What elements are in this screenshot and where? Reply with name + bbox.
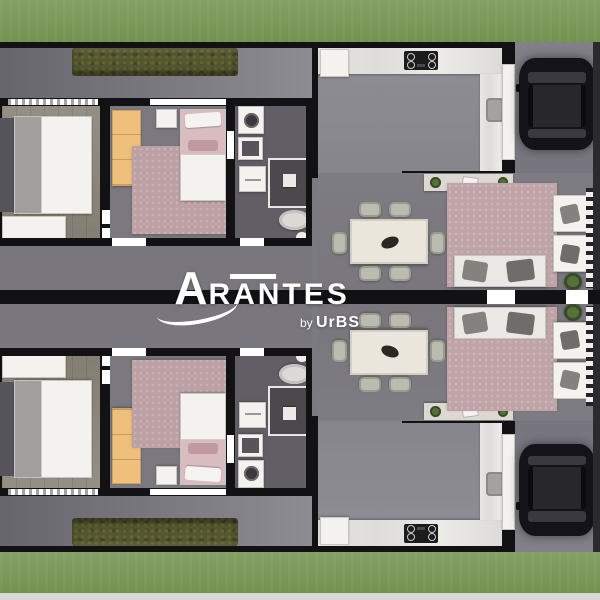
car-roof	[528, 85, 586, 127]
vanity-handle	[245, 413, 261, 415]
bedroom2-window	[146, 489, 232, 495]
nightstand	[156, 466, 177, 485]
sofa-cushion	[506, 258, 535, 282]
car-windshield	[528, 72, 586, 83]
armchair	[553, 195, 587, 232]
byline-prefix: by	[300, 316, 313, 330]
sofa-cushion	[462, 259, 489, 283]
bedroom1-window	[8, 489, 98, 495]
washer-drum	[244, 466, 259, 481]
refrigerator	[320, 517, 349, 545]
single-bed	[180, 109, 226, 201]
walkway-edge	[0, 48, 12, 102]
shower-box	[268, 386, 310, 436]
vanity-handle	[245, 179, 261, 181]
refrigerator	[320, 49, 349, 77]
washer-drum	[244, 113, 259, 128]
parked-car	[519, 444, 595, 536]
bedroom-rear-wall	[0, 238, 312, 246]
armchair	[553, 322, 587, 359]
bedroom-rear-wall	[0, 348, 312, 356]
bathroom-rear-door	[240, 238, 264, 246]
burner-icon	[407, 525, 415, 533]
bedroom1-door-opening	[102, 370, 110, 384]
armchair-cushion	[559, 369, 580, 390]
bedroom2-rear-door	[112, 238, 146, 246]
front-lawn	[0, 0, 600, 42]
double-bed	[14, 380, 92, 478]
car-rear-window	[528, 456, 586, 465]
parked-car	[519, 58, 595, 150]
car-rear-window	[528, 129, 586, 138]
garage-half-wall	[502, 434, 515, 530]
bed2-fold-line	[181, 154, 225, 155]
bedroom2-rear-door	[112, 348, 146, 356]
cooktop	[404, 51, 438, 70]
sofa-cushion	[462, 311, 489, 335]
garden-hedge	[72, 48, 238, 76]
table-centerpiece	[380, 343, 401, 359]
washing-machine	[238, 106, 264, 134]
armchair-cushion	[560, 244, 581, 265]
burner-icon	[428, 533, 436, 541]
car-roof	[528, 467, 586, 509]
car-mirror-left	[516, 502, 520, 510]
laundry-tub	[238, 434, 263, 457]
tub-basin	[242, 141, 259, 156]
floor-plant-icon	[564, 304, 582, 321]
bed2-pillow	[185, 466, 222, 482]
bathroom-vanity	[239, 402, 266, 428]
unit-b	[0, 297, 600, 552]
bathroom-wall	[226, 98, 235, 247]
burner-icon	[407, 533, 415, 541]
burner-icon	[407, 61, 415, 69]
bedroom2-window	[146, 99, 232, 105]
back-lawn	[0, 552, 600, 593]
bedroom1-window	[8, 99, 98, 105]
armchair-cushion	[559, 203, 580, 224]
armchair	[553, 362, 587, 399]
boundary-wall-right	[593, 304, 600, 552]
dining-chair	[389, 377, 411, 392]
bed1-fold-line	[41, 117, 42, 213]
brand-macron-bar	[230, 274, 276, 279]
sofa	[454, 307, 546, 339]
dining-chair	[332, 340, 347, 362]
garden-hedge	[72, 518, 238, 546]
living-window-opening	[566, 290, 588, 297]
walkway-edge	[0, 492, 12, 546]
car-windshield	[528, 511, 586, 522]
bedroom-divider-wall	[100, 98, 110, 247]
dining-chair	[430, 232, 445, 254]
bathroom-wall	[226, 347, 235, 496]
cooktop-controls	[417, 64, 425, 67]
burner-icon	[428, 61, 436, 69]
bedroom1-dresser	[2, 353, 66, 378]
bed2-pillow	[185, 112, 222, 128]
garage-half-wall	[502, 64, 515, 160]
shower-drain	[283, 174, 296, 187]
dining-chair	[359, 202, 381, 217]
bathroom-vanity	[239, 166, 266, 192]
burner-icon	[428, 525, 436, 533]
double-bed	[14, 116, 92, 214]
dining-chair	[389, 202, 411, 217]
car-mirror-left	[516, 84, 520, 92]
floor-plant-icon	[564, 273, 582, 290]
dining-chair	[389, 313, 411, 328]
garage-wall-segment	[502, 530, 515, 552]
potted-plant-icon	[430, 177, 441, 188]
burner-icon	[407, 53, 415, 61]
armchair-cushion	[560, 330, 581, 351]
single-bed	[180, 393, 226, 485]
bathroom-door-opening	[227, 131, 234, 159]
image-edge-strip	[0, 593, 600, 600]
watermark: ARANTES by UrBS	[150, 270, 374, 332]
entry-threshold	[487, 297, 515, 304]
shower-drain	[283, 407, 296, 420]
garage-wall-segment	[502, 42, 515, 64]
dining-chair	[359, 377, 381, 392]
bathroom-door-opening	[227, 435, 234, 463]
byline-brand: UrBS	[316, 314, 360, 331]
entry-threshold	[487, 290, 515, 297]
bathroom-rear-door	[240, 348, 264, 356]
potted-plant-icon	[430, 406, 441, 417]
table-centerpiece	[380, 234, 401, 250]
sofa-cushion	[506, 311, 535, 335]
bed1-fold-line	[41, 381, 42, 477]
dining-chair	[430, 340, 445, 362]
living-window-opening	[566, 297, 588, 304]
tub-basin	[242, 438, 259, 453]
cooktop	[404, 524, 438, 543]
dining-chair	[389, 266, 411, 281]
bed2-accent-pillow	[188, 443, 218, 454]
dining-table	[350, 219, 428, 264]
burner-icon	[428, 53, 436, 61]
sofa	[454, 255, 546, 287]
bed1-throw-blanket	[15, 117, 41, 213]
unit-a	[0, 42, 600, 297]
bed1-throw-blanket	[15, 381, 41, 477]
washing-machine	[238, 460, 264, 488]
bed2-accent-pillow	[188, 140, 218, 151]
armchair	[553, 235, 587, 272]
floor-plan-rendering: ARANTES by UrBS	[0, 0, 600, 600]
cooktop-controls	[417, 527, 425, 530]
dining-table	[350, 330, 428, 375]
dining-chair	[332, 232, 347, 254]
bed2-fold-line	[181, 439, 225, 440]
nightstand	[156, 109, 177, 128]
bedroom1-door-opening	[102, 210, 110, 224]
boundary-wall-right	[593, 42, 600, 290]
laundry-tub	[238, 137, 263, 160]
shower-box	[268, 158, 310, 208]
